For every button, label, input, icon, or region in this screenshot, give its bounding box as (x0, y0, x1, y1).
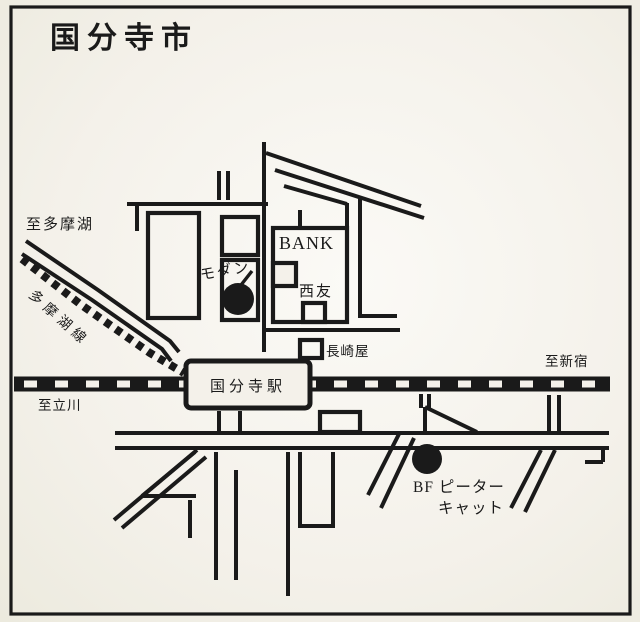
label-bank: BANK (279, 233, 334, 253)
map-title: 国分寺市 (50, 21, 198, 55)
city-block-west (148, 213, 199, 318)
road-east-of-seiyu (360, 198, 397, 316)
seiyu-block-notch (273, 263, 296, 286)
road-stub-north (219, 171, 228, 200)
triangle-connector (421, 394, 429, 408)
seiyu-inner-building (303, 303, 325, 322)
tamako-road-edge-1 (26, 241, 179, 352)
label-peter-cat-line2: キャット (438, 500, 504, 517)
south-street-loop (300, 452, 333, 526)
nagasakiya-building (300, 340, 322, 358)
label-to-tamako: 至多摩湖 (26, 215, 94, 233)
south-building (320, 412, 360, 432)
triangle-block (425, 407, 477, 432)
sw-diagonal-b (122, 457, 206, 528)
railway-south-connector (549, 395, 559, 432)
map-canvas: 国分寺駅 国分寺市 至多摩湖 多摩湖線 BANK モダン 西友 長崎屋 至新宿 … (0, 0, 640, 622)
label-nagasakiya: 長崎屋 (326, 344, 370, 359)
poi-dot-peter-cat (412, 444, 442, 474)
city-block-small-upper (222, 217, 258, 255)
kokubunji-map: 国分寺駅 国分寺市 至多摩湖 多摩湖線 BANK モダン 西友 長崎屋 至新宿 … (0, 0, 640, 622)
label-to-tachikawa: 至立川 (38, 398, 82, 413)
street-network-north (22, 142, 424, 361)
label-peter-cat-line1: BF ピーター (413, 478, 505, 496)
label-to-shinjuku: 至新宿 (545, 353, 589, 369)
label-seiyu: 西友 (299, 283, 333, 300)
se-diagonal-right-pair (511, 450, 555, 512)
poi-dot-modern (222, 283, 254, 315)
se-diagonal-left-pair (368, 432, 414, 508)
street-network-south (114, 394, 609, 596)
se-corner-notch (585, 450, 603, 462)
road-diagonal-lower (275, 170, 424, 218)
road-diagonal-upper (266, 153, 421, 206)
kokubunji-station-label: 国分寺駅 (210, 378, 286, 395)
station-south-connector (219, 411, 240, 432)
